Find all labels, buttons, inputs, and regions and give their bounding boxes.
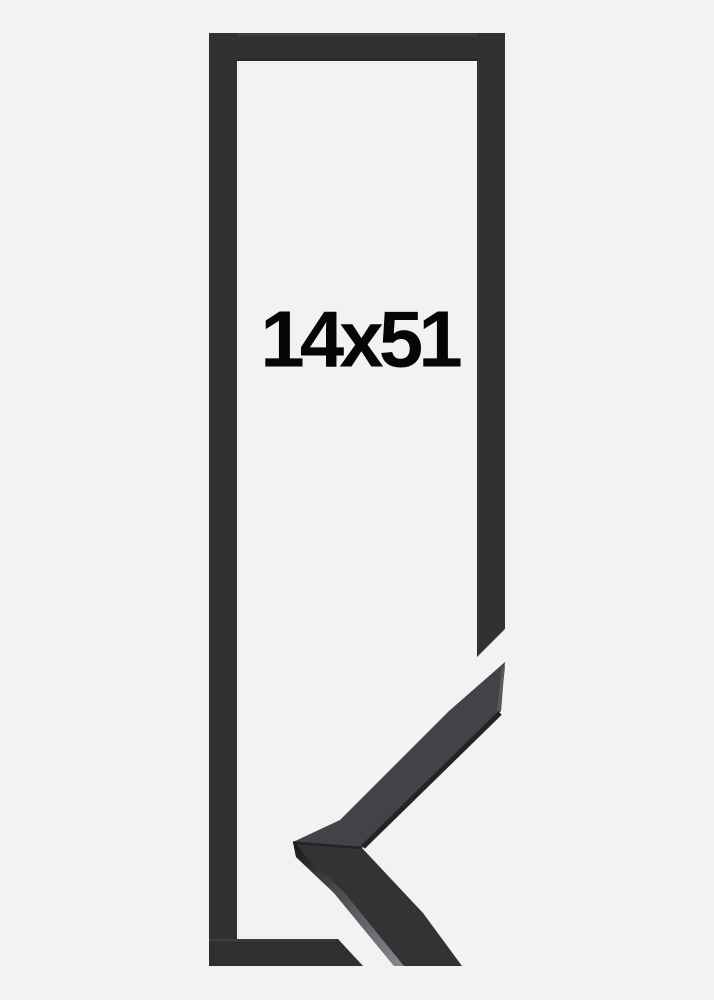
size-label: 14x51	[260, 293, 457, 385]
frame-top-bar-highlight	[209, 33, 505, 37]
frame-corner-sample-graphic	[0, 0, 714, 1000]
frame-left-bar	[209, 33, 237, 966]
frame-right-bar	[477, 33, 505, 657]
frame-bottom-bar	[209, 939, 363, 966]
frame-bottom-bar-highlight	[209, 939, 336, 942]
frame-top-bar-inner-shadow	[237, 59, 477, 62]
moulding-upper-leg-face	[293, 662, 505, 848]
product-image-canvas: 14x51	[0, 0, 714, 1000]
frame-top-bar	[209, 33, 505, 61]
